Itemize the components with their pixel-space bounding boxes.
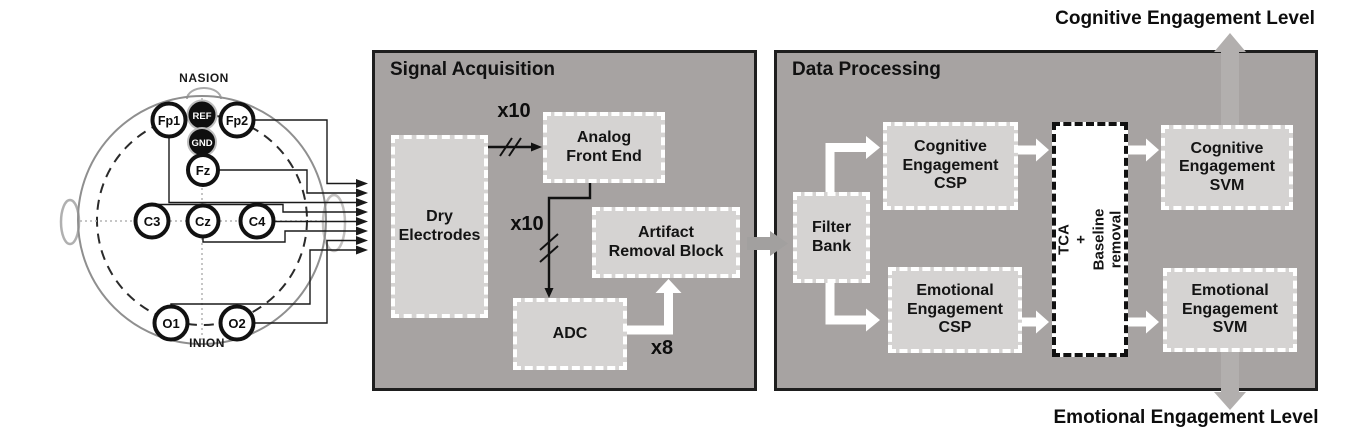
electrode-o2: [221, 307, 254, 340]
electrode-c4-label: C4: [249, 214, 266, 229]
x10-adc-annotation: x10: [505, 213, 549, 236]
electrode-o1: [155, 307, 188, 340]
tca-baseline-block: TCA + Baseline removal: [1052, 122, 1128, 357]
electrode-o2-label: O2: [228, 316, 245, 331]
electrode-cz-label: Cz: [195, 214, 211, 229]
electrode-c3-label: C3: [144, 214, 161, 229]
electrode-fp1: [153, 104, 186, 137]
cognitive-svm-block: Cognitive Engagement SVM: [1161, 125, 1293, 210]
emotional-svm-label: Emotional Engagement SVM: [1182, 282, 1278, 337]
head-circle: [78, 96, 326, 344]
emotional-csp-block: Emotional Engagement CSP: [888, 267, 1022, 353]
inion-label: INION: [189, 336, 225, 350]
analog-front-end-label: Analog Front End: [566, 129, 642, 166]
electrode-cz: [188, 206, 219, 237]
electrode-fz-label: Fz: [196, 163, 211, 178]
electrode-ref: [188, 101, 217, 130]
electrode-wires: [152, 120, 357, 323]
adc-label: ADC: [553, 325, 588, 343]
cognitive-csp-label: Cognitive Engagement CSP: [902, 138, 998, 193]
emotional-output-label: Emotional Engagement Level: [1045, 407, 1327, 429]
cognitive-svm-label: Cognitive Engagement SVM: [1179, 140, 1275, 195]
electrode-c4: [241, 205, 274, 238]
cognitive-csp-block: Cognitive Engagement CSP: [883, 122, 1018, 210]
electrode-ref-label: REF: [193, 111, 212, 122]
analog-front-end-block: Analog Front End: [543, 112, 665, 183]
data-processing-title: Data Processing: [792, 59, 941, 81]
dry-electrodes-block: Dry Electrodes: [391, 135, 488, 318]
emotional-csp-label: Emotional Engagement CSP: [907, 282, 1003, 337]
dry-electrodes-label: Dry Electrodes: [399, 208, 481, 245]
emotional-svm-block: Emotional Engagement SVM: [1163, 268, 1297, 352]
filter-bank-block: Filter Bank: [793, 192, 870, 283]
adc-block: ADC: [513, 298, 627, 370]
cognitive-output-label: Cognitive Engagement Level: [1040, 8, 1330, 30]
x10-afe-annotation: x10: [492, 100, 536, 123]
left-ear: [61, 200, 79, 244]
electrode-c3: [136, 205, 169, 238]
artifact-removal-block: Artifact Removal Block: [592, 207, 740, 278]
nasion-bump: [187, 88, 221, 99]
filter-bank-label: Filter Bank: [812, 219, 851, 256]
electrode-fp1-label: Fp1: [158, 114, 180, 128]
head-outline-group: [61, 88, 345, 344]
signal-acquisition-title: Signal Acquisition: [390, 59, 555, 81]
x8-annotation: x8: [640, 337, 684, 360]
eeg-pipeline-diagram: Signal Acquisition Data Processing: [0, 0, 1369, 439]
electrode-wire-arrowheads: [356, 179, 368, 255]
artifact-removal-label: Artifact Removal Block: [609, 224, 724, 261]
electrodes: REF GND Fp1 Fp2 Fz C3 Cz C4 O1 O2 NASION…: [136, 71, 274, 350]
electrode-fp2-label: Fp2: [226, 114, 248, 128]
electrode-fz: [188, 155, 218, 185]
electrode-gnd: [188, 128, 216, 156]
electrode-fp2: [221, 104, 254, 137]
electrode-o1-label: O1: [162, 316, 179, 331]
electrode-gnd-label: GND: [191, 138, 212, 149]
right-ear: [323, 195, 345, 251]
nasion-label: NASION: [179, 71, 229, 85]
tca-baseline-label: TCA + Baseline removal: [1056, 206, 1125, 274]
electrode-ring-dashed: [97, 115, 307, 325]
